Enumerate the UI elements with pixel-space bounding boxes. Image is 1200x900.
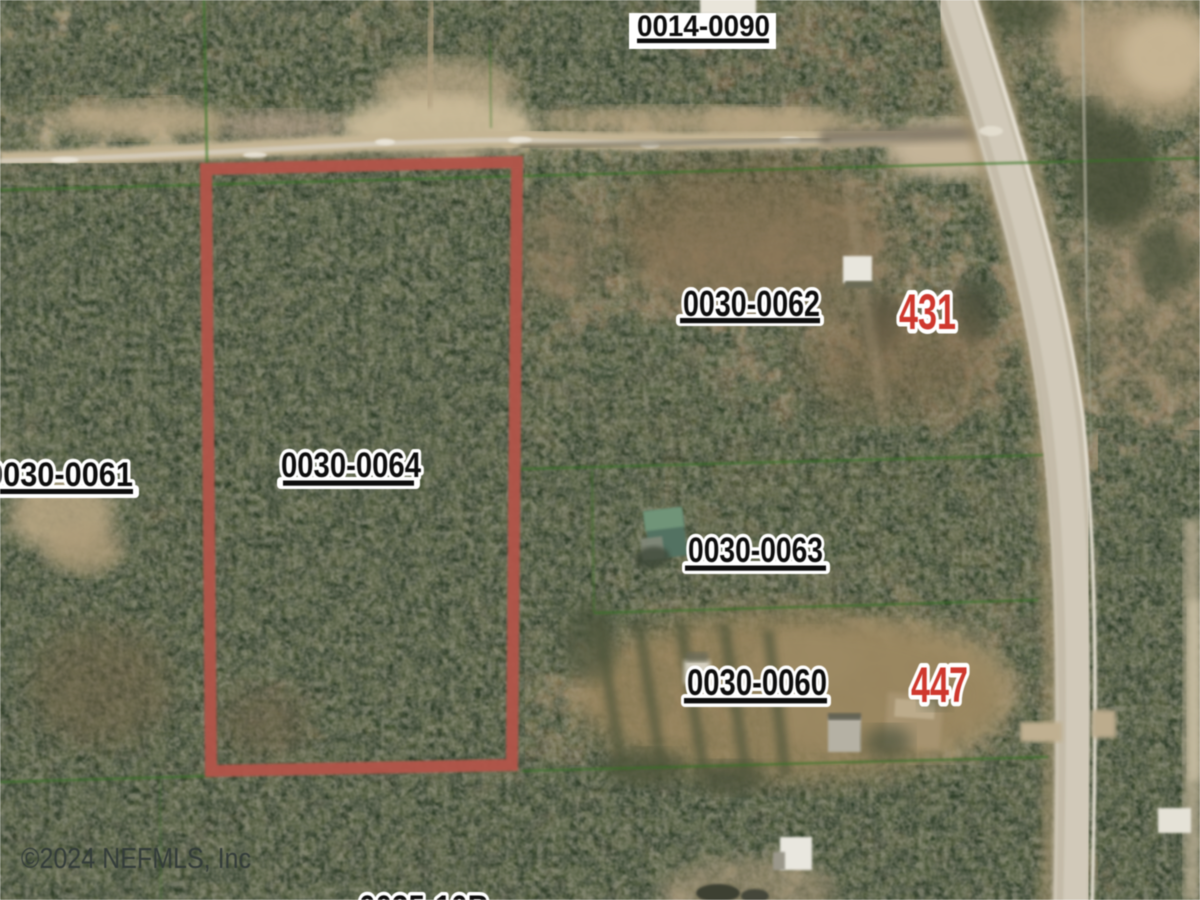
svg-text:©2024 NEFMLS, Inc: ©2024 NEFMLS, Inc	[21, 843, 251, 875]
svg-text:0035-10B: 0035-10B	[359, 889, 489, 900]
svg-text:0030-0063: 0030-0063	[688, 531, 823, 570]
svg-text:431: 431	[899, 284, 956, 340]
svg-text:0014-0090: 0014-0090	[637, 10, 770, 43]
svg-text:0030-0062: 0030-0062	[683, 283, 820, 324]
svg-text:0030-0060: 0030-0060	[687, 662, 827, 703]
svg-text:447: 447	[911, 657, 968, 713]
svg-text:0030-0061: 0030-0061	[0, 456, 133, 494]
svg-text:0030-0064: 0030-0064	[281, 446, 421, 485]
